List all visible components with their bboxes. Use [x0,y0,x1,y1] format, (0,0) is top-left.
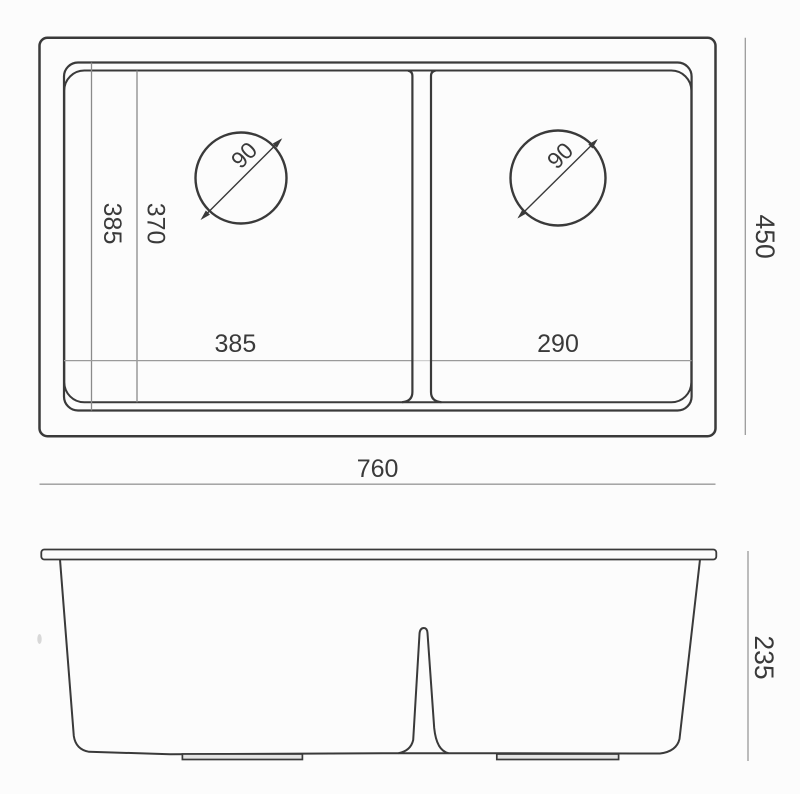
svg-text:385: 385 [215,330,257,358]
svg-text:385: 385 [98,203,126,245]
svg-text:235: 235 [749,635,779,679]
svg-text:290: 290 [537,330,579,358]
svg-text:370: 370 [142,203,170,245]
svg-text:760: 760 [357,455,399,483]
svg-text:450: 450 [750,214,780,258]
